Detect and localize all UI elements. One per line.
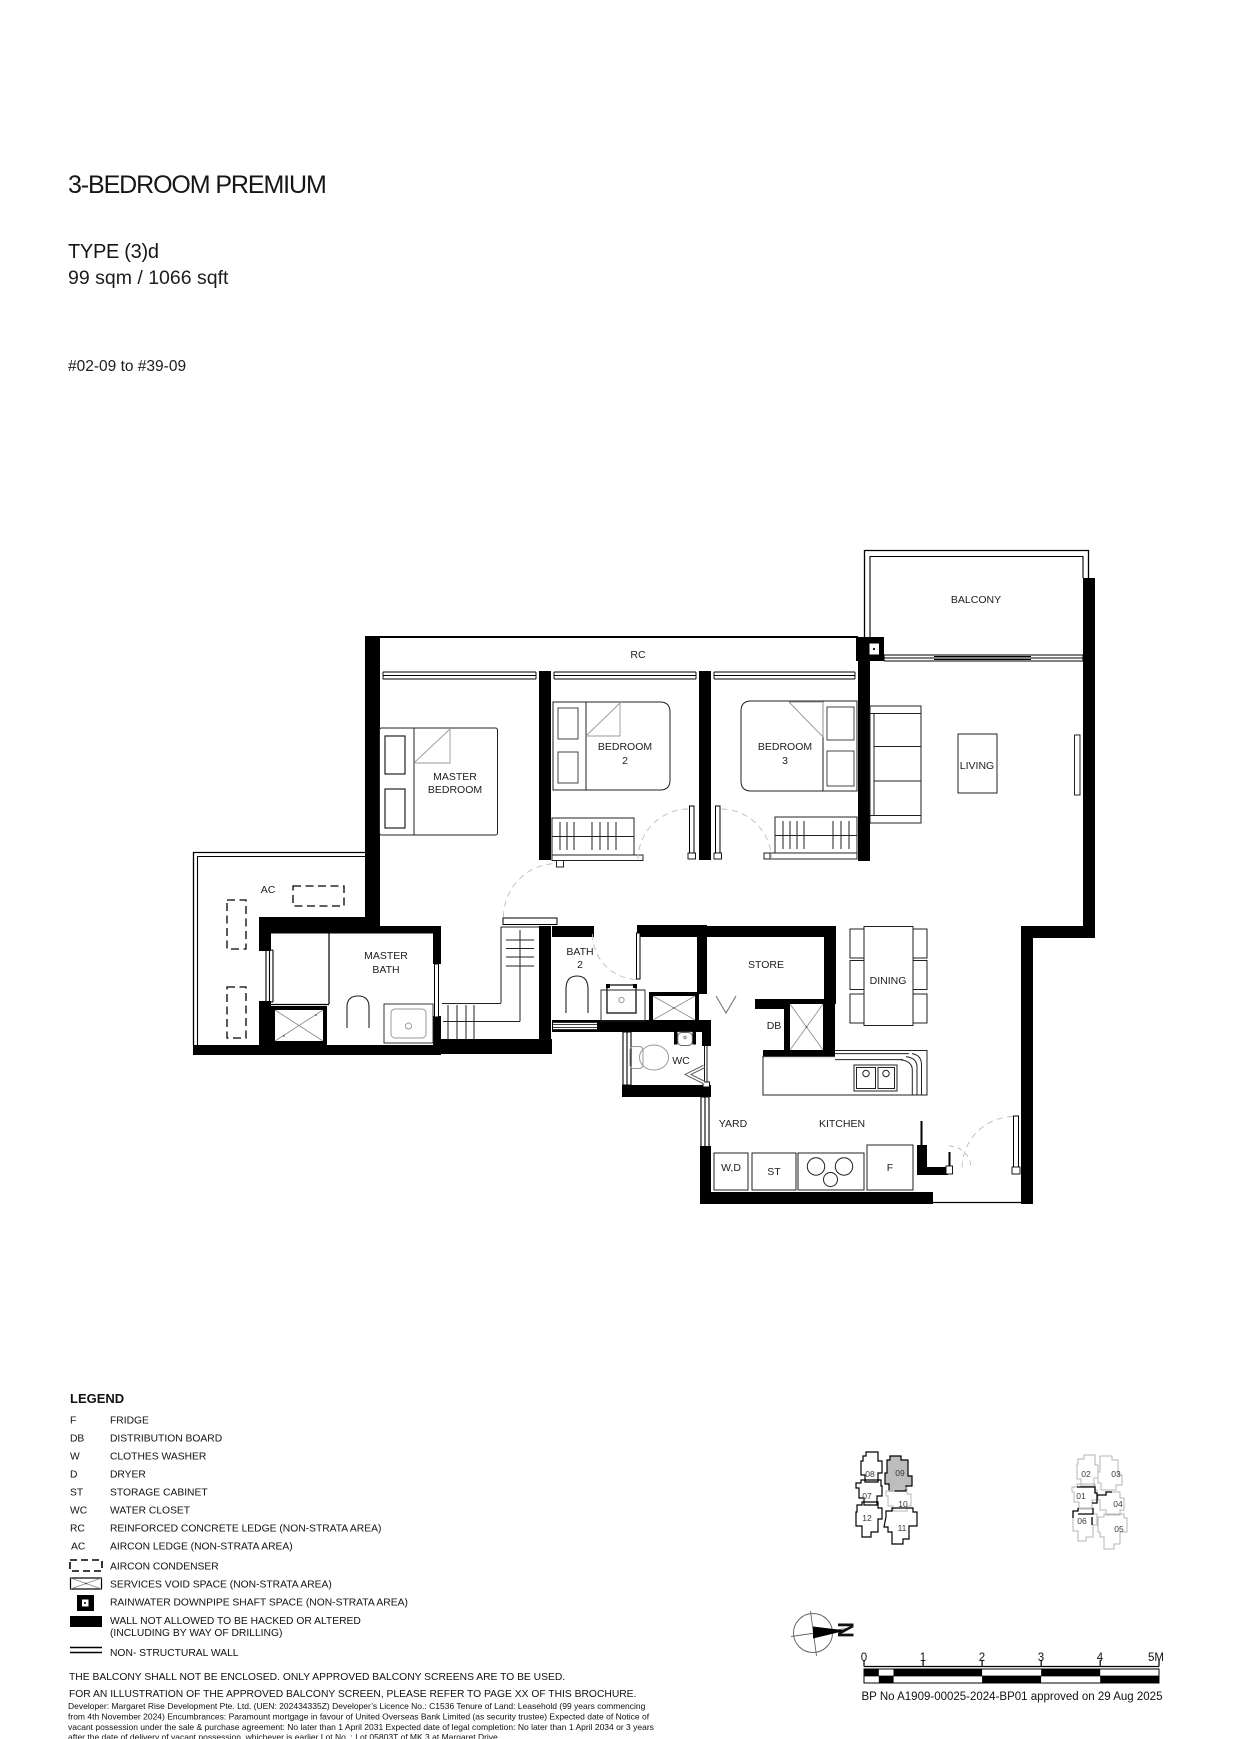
svg-text:DRYER: DRYER bbox=[110, 1470, 146, 1481]
svg-text:NON- STRUCTURAL WALL: NON- STRUCTURAL WALL bbox=[110, 1648, 239, 1659]
svg-text:BP No A1909-00025-2024-BP01 ap: BP No A1909-00025-2024-BP01 approved on … bbox=[862, 1691, 1163, 1703]
svg-text:3-BEDROOM PREMIUM: 3-BEDROOM PREMIUM bbox=[68, 171, 326, 199]
svg-text:04: 04 bbox=[1113, 1499, 1123, 1509]
svg-text:BATH: BATH bbox=[372, 964, 399, 976]
svg-text:BATH: BATH bbox=[566, 946, 593, 958]
svg-text:MASTER: MASTER bbox=[364, 950, 408, 962]
svg-text:ST: ST bbox=[767, 1166, 781, 1178]
svg-text:LEGEND: LEGEND bbox=[70, 1391, 124, 1406]
svg-text:CLOTHES WASHER: CLOTHES WASHER bbox=[110, 1452, 206, 1463]
svg-text:5M: 5M bbox=[1148, 1652, 1164, 1664]
svg-text:BEDROOM: BEDROOM bbox=[428, 784, 482, 796]
svg-text:99 sqm / 1066 sqft: 99 sqm / 1066 sqft bbox=[68, 267, 229, 289]
svg-text:AIRCON CONDENSER: AIRCON CONDENSER bbox=[110, 1562, 219, 1573]
svg-text:DINING: DINING bbox=[870, 975, 907, 987]
svg-text:RC: RC bbox=[630, 649, 646, 661]
svg-text:MASTER: MASTER bbox=[433, 771, 477, 783]
svg-text:09: 09 bbox=[895, 1468, 905, 1478]
svg-text:Developer: Margaret Rise Devel: Developer: Margaret Rise Development Pte… bbox=[68, 1701, 646, 1711]
svg-text:BEDROOM: BEDROOM bbox=[598, 741, 652, 753]
svg-text:10: 10 bbox=[898, 1499, 908, 1509]
svg-text:KITCHEN: KITCHEN bbox=[819, 1118, 865, 1130]
svg-text:05: 05 bbox=[1114, 1524, 1124, 1534]
svg-text:BEDROOM: BEDROOM bbox=[758, 741, 812, 753]
svg-text:THE BALCONY SHALL NOT BE ENCLO: THE BALCONY SHALL NOT BE ENCLOSED. ONLY … bbox=[69, 1672, 565, 1683]
svg-text:BALCONY: BALCONY bbox=[951, 594, 1001, 606]
svg-text:YARD: YARD bbox=[719, 1118, 748, 1130]
svg-text:3: 3 bbox=[782, 755, 788, 767]
svg-text:AIRCON LEDGE (NON-STRATA AREA): AIRCON LEDGE (NON-STRATA AREA) bbox=[110, 1542, 293, 1553]
svg-text:STORE: STORE bbox=[748, 959, 784, 971]
svg-text:(INCLUDING BY WAY OF DRILLING): (INCLUDING BY WAY OF DRILLING) bbox=[110, 1628, 282, 1639]
svg-text:STORAGE CABINET: STORAGE CABINET bbox=[110, 1488, 208, 1499]
svg-text:from 4th November 2024) Encum: from 4th November 2024) Encumbrances: Pa… bbox=[68, 1712, 650, 1722]
svg-text:AC: AC bbox=[71, 1542, 86, 1553]
svg-text:FOR AN ILLUSTRATION OF THE APP: FOR AN ILLUSTRATION OF THE APPROVED BALC… bbox=[69, 1689, 636, 1700]
svg-text:2: 2 bbox=[622, 755, 628, 767]
svg-text:08: 08 bbox=[865, 1469, 875, 1479]
svg-text:D: D bbox=[70, 1470, 77, 1481]
svg-text:06: 06 bbox=[1077, 1516, 1087, 1526]
svg-text:LIVING: LIVING bbox=[960, 760, 994, 772]
svg-text:2: 2 bbox=[577, 959, 583, 971]
svg-text:DB: DB bbox=[767, 1020, 782, 1032]
svg-text:WALL NOT ALLOWED TO BE HACKED: WALL NOT ALLOWED TO BE HACKED OR ALTERED bbox=[110, 1616, 361, 1627]
svg-text:after the date of delivery of: after the date of delivery of vacant pos… bbox=[68, 1732, 500, 1739]
svg-text:ST: ST bbox=[70, 1488, 84, 1499]
svg-text:F: F bbox=[70, 1416, 76, 1427]
svg-text:RAINWATER DOWNPIPE SHAFT SPACE: RAINWATER DOWNPIPE SHAFT SPACE (NON-STRA… bbox=[110, 1598, 408, 1609]
svg-text:FRIDGE: FRIDGE bbox=[110, 1416, 149, 1427]
svg-text:DB: DB bbox=[70, 1434, 84, 1445]
svg-text:12: 12 bbox=[862, 1513, 872, 1523]
svg-text:W,D: W,D bbox=[721, 1162, 741, 1174]
svg-text:RC: RC bbox=[70, 1524, 85, 1535]
svg-text:SERVICES VOID SPACE (NON-STRAT: SERVICES VOID SPACE (NON-STRATA AREA) bbox=[110, 1580, 332, 1591]
svg-text:F: F bbox=[887, 1162, 893, 1174]
svg-text:01: 01 bbox=[1076, 1491, 1086, 1501]
svg-text:WC: WC bbox=[672, 1055, 690, 1067]
svg-text:TYPE (3)d: TYPE (3)d bbox=[68, 241, 159, 263]
svg-text:07: 07 bbox=[862, 1491, 872, 1501]
svg-text:11: 11 bbox=[898, 1523, 907, 1533]
svg-text:02: 02 bbox=[1081, 1469, 1091, 1479]
svg-text:03: 03 bbox=[1111, 1469, 1121, 1479]
svg-text:AC: AC bbox=[261, 884, 276, 896]
svg-text:WATER CLOSET: WATER CLOSET bbox=[110, 1506, 191, 1517]
svg-text:DISTRIBUTION BOARD: DISTRIBUTION BOARD bbox=[110, 1434, 222, 1445]
svg-text:W: W bbox=[70, 1452, 80, 1463]
svg-text:vacant possession under the sa: vacant possession under the sale & purch… bbox=[68, 1722, 654, 1732]
svg-text:REINFORCED CONCRETE LEDGE (NON: REINFORCED CONCRETE LEDGE (NON-STRATA AR… bbox=[110, 1524, 381, 1535]
svg-text:N: N bbox=[833, 1622, 858, 1638]
svg-text:#02-09 to #39-09: #02-09 to #39-09 bbox=[68, 358, 186, 375]
svg-text:WC: WC bbox=[70, 1506, 88, 1517]
